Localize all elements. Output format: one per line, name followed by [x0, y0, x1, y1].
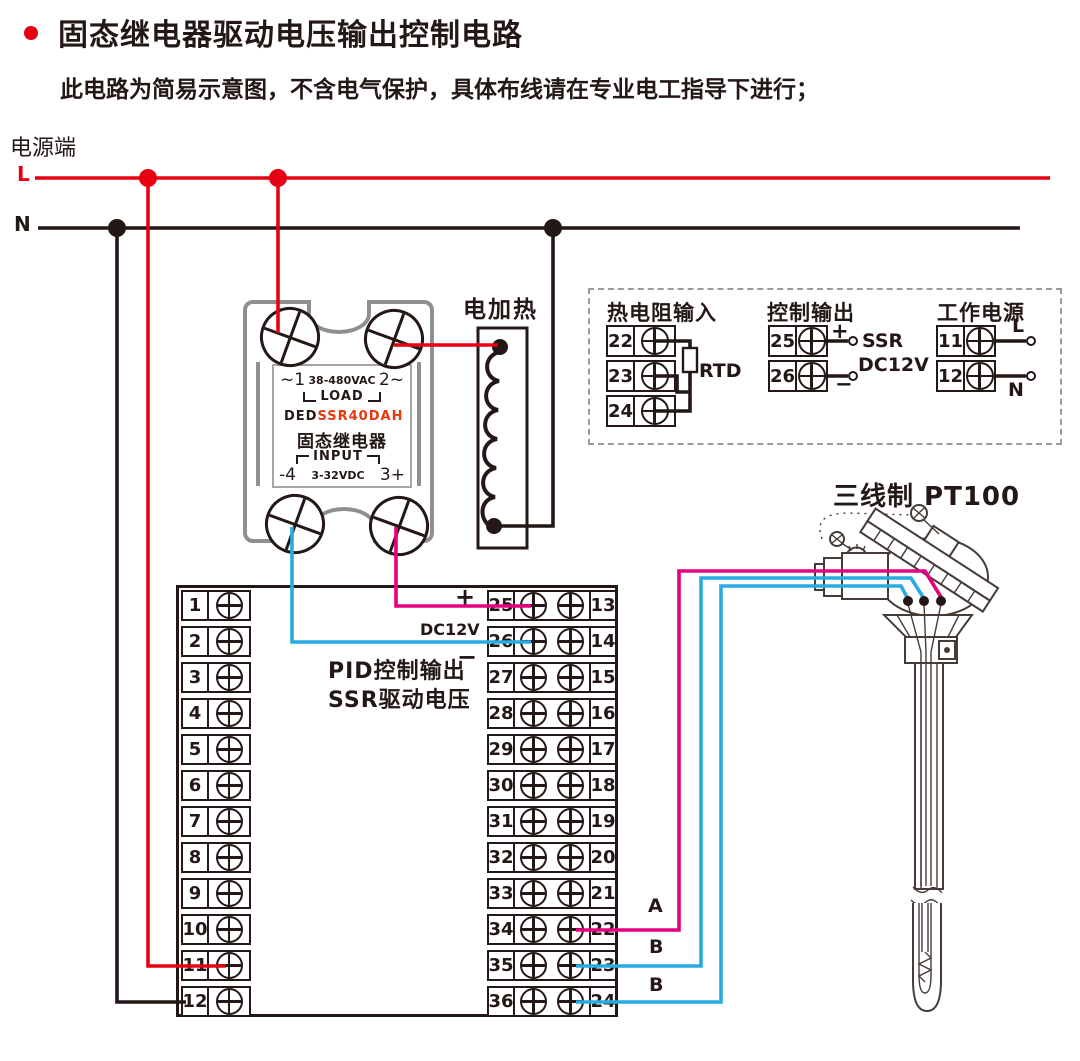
wire-label-b2: B [649, 974, 663, 996]
terminal-number: 29 [489, 736, 515, 763]
screw-icon [641, 397, 669, 425]
ssr-terminal-4: -4 [279, 465, 296, 485]
load-bracket-left [303, 392, 316, 402]
page-subtitle: 此电路为简易示意图，不含电气保护，具体布线请在专业电工指导下进行； [60, 70, 819, 104]
screw-icon [216, 664, 243, 691]
terminal-number: 33 [489, 880, 515, 907]
screw-cell [635, 327, 674, 355]
terminal-row-right: 2816 [487, 698, 617, 729]
wire-label-b1: B [649, 936, 663, 958]
screw-cell [635, 362, 674, 390]
controller-terminal-block: 1234567891011122513261427152816291730183… [176, 585, 618, 1017]
terminal-number: 21 [589, 880, 615, 907]
lid-swing-dotted-path [820, 513, 914, 539]
terminal-number: 28 [489, 700, 515, 727]
terminal-number: 12 [938, 362, 965, 390]
screw-icon [520, 628, 547, 655]
screw-cell [209, 700, 249, 727]
pt100-probe-drawing [815, 494, 1007, 1011]
terminal-row-right: 2917 [487, 734, 617, 765]
terminal-number: 36 [489, 988, 515, 1015]
ssr-load-label: LOAD [320, 389, 363, 404]
screw-icon [216, 808, 243, 835]
load-bracket-right [368, 392, 381, 402]
screw-cell [552, 808, 589, 835]
screw-icon [798, 362, 826, 390]
legend-terminal-row: 24 [606, 395, 676, 427]
screw-icon [520, 916, 547, 943]
legend-terminal-row: 25 [768, 325, 828, 357]
screw-icon [557, 880, 584, 907]
terminal-row-left: 9 [181, 878, 251, 909]
terminal-number: 20 [589, 844, 615, 871]
terminal-row-left: 5 [181, 734, 251, 765]
legend-terminal-row: 26 [768, 360, 828, 392]
rtd-label: RTD [699, 360, 742, 382]
screw-icon [520, 664, 547, 691]
pt100-wire-a [576, 571, 941, 930]
legend-terminal-row: 12 [936, 360, 996, 392]
screw-icon [520, 844, 547, 871]
screw-cell [209, 772, 249, 799]
pt100-wire-b1 [576, 578, 923, 966]
screw-icon [557, 628, 584, 655]
heater-label: 电加热 [463, 290, 538, 324]
ssr-input-voltage: 3-32VDC [311, 469, 364, 482]
ssr-input-label: INPUT [313, 449, 363, 464]
screw-icon [216, 844, 243, 871]
screw-cell [515, 772, 552, 799]
screw-icon [557, 808, 584, 835]
terminal-number: 6 [183, 772, 209, 799]
ssr-load-voltage: 38-480VAC [308, 374, 375, 387]
terminal-number: 22 [608, 327, 635, 355]
terminal-number: 24 [608, 397, 635, 425]
screw-icon [520, 592, 547, 619]
control-ssr-label: SSR [862, 330, 903, 352]
legend-terminal-row: 23 [606, 360, 676, 392]
supply-l-label: L [1012, 315, 1024, 337]
pt100-wire-b2 [576, 586, 907, 1002]
screw-cell [552, 700, 589, 727]
screw-cell [209, 628, 249, 655]
block-minus-sign: − [457, 643, 477, 671]
screw-cell [209, 592, 249, 619]
terminal-number: 23 [608, 362, 635, 390]
screw-cell [797, 362, 826, 390]
head-screw-icon [830, 532, 844, 546]
control-dc12v-label: DC12V [858, 354, 929, 376]
screw-cell [515, 736, 552, 763]
terminal-number: 19 [589, 808, 615, 835]
supply-n-ring-terminal [1026, 371, 1036, 381]
input-bracket-right [367, 455, 380, 464]
terminal-number: 32 [489, 844, 515, 871]
screw-cell [515, 664, 552, 691]
pid-output-line2: SSR驱动电压 [328, 682, 471, 714]
screw-icon [798, 327, 826, 355]
terminal-number: 4 [183, 700, 209, 727]
terminal-row-left: 4 [181, 698, 251, 729]
title-bullet-icon [24, 26, 38, 40]
terminal-number: 22 [589, 916, 615, 943]
screw-icon [216, 592, 243, 619]
ssr-left-rail [256, 362, 260, 486]
screw-icon [557, 772, 584, 799]
terminal-number: 26 [489, 628, 515, 655]
screw-cell [209, 808, 249, 835]
screw-cell [515, 988, 552, 1015]
screw-cell [552, 592, 589, 619]
supply-l-ring-terminal [1026, 336, 1036, 346]
block-plus-sign: + [455, 583, 475, 611]
screw-icon [520, 988, 547, 1015]
terminal-row-left: 1 [181, 590, 251, 621]
line-n-label: N [14, 212, 31, 236]
terminal-row-right: 2715 [487, 662, 617, 693]
terminal-row-right: 3624 [487, 986, 617, 1017]
pid-output-line1: PID控制输出 [328, 653, 466, 685]
screw-icon [216, 628, 243, 655]
screw-cell [209, 880, 249, 907]
screw-cell [552, 772, 589, 799]
terminal-row-right: 3018 [487, 770, 617, 801]
input-bracket-left [296, 455, 309, 464]
screw-icon [216, 952, 243, 979]
terminal-number: 27 [489, 664, 515, 691]
terminal-number: 31 [489, 808, 515, 835]
ssr-label-plate: ~1 38-480VAC 2~ LOAD DED SSR40DAH 固态继电器 … [272, 364, 412, 488]
screw-cell [965, 362, 994, 390]
screw-icon [216, 772, 243, 799]
terminal-row-left: 3 [181, 662, 251, 693]
screw-cell [515, 808, 552, 835]
terminal-number: 34 [489, 916, 515, 943]
terminal-number: 11 [183, 952, 209, 979]
ssr-right-rail [417, 362, 421, 486]
screw-cell [209, 952, 249, 979]
terminal-number: 30 [489, 772, 515, 799]
screw-icon [520, 736, 547, 763]
probe-sheath-lower [913, 903, 941, 1011]
probe-taper [884, 615, 972, 637]
terminal-number: 1 [183, 592, 209, 619]
head-screw-dome [846, 548, 867, 559]
terminal-row-left: 7 [181, 806, 251, 837]
heater-coil [483, 352, 501, 528]
screw-icon [557, 700, 584, 727]
terminal-number: 3 [183, 664, 209, 691]
screw-icon [216, 880, 243, 907]
line-l-label: L [17, 162, 30, 186]
terminal-number: 17 [589, 736, 615, 763]
ssr-terminal-3: 3+ [380, 465, 405, 485]
screw-icon [641, 362, 669, 390]
pt100-label: 三线制 PT100 [833, 476, 1020, 513]
legend-terminal-row: 11 [936, 325, 996, 357]
terminal-number: 5 [183, 736, 209, 763]
terminal-number: 2 [183, 628, 209, 655]
screw-icon [557, 952, 584, 979]
terminal-row-left: 11 [181, 950, 251, 981]
probe-collar [905, 637, 957, 663]
terminal-row-right: 2513 [487, 590, 617, 621]
screw-cell [209, 916, 249, 943]
heater-drawing [478, 328, 527, 548]
probe-head-body [878, 538, 988, 616]
terminal-number: 8 [183, 844, 209, 871]
terminal-number: 9 [183, 880, 209, 907]
screw-icon [557, 916, 584, 943]
screw-icon [216, 988, 243, 1015]
screw-cell [552, 952, 589, 979]
terminal-number: 13 [589, 592, 615, 619]
screw-cell [515, 628, 552, 655]
screw-icon [520, 772, 547, 799]
terminal-row-right: 3523 [487, 950, 617, 981]
terminal-number: 25 [770, 327, 797, 355]
terminal-row-left: 2 [181, 626, 251, 657]
terminal-number: 24 [589, 988, 615, 1015]
screw-cell [515, 916, 552, 943]
legend-terminal-row: 22 [606, 325, 676, 357]
control-plus-sign: + [831, 319, 849, 343]
ssr-terminal-2: 2~ [379, 370, 404, 390]
screw-icon [557, 736, 584, 763]
terminal-number: 7 [183, 808, 209, 835]
screw-icon [520, 808, 547, 835]
terminal-number: 10 [183, 916, 209, 943]
terminal-number: 26 [770, 362, 797, 390]
screw-cell [635, 397, 674, 425]
screw-icon [966, 327, 994, 355]
rtd-element-symbol [919, 952, 931, 982]
terminal-number: 14 [589, 628, 615, 655]
terminal-row-right: 3422 [487, 914, 617, 945]
screw-cell [552, 916, 589, 943]
screw-cell [209, 844, 249, 871]
n-to-heater-wire [496, 228, 553, 526]
screw-icon [557, 988, 584, 1015]
terminal-row-right: 3321 [487, 878, 617, 909]
screw-icon [557, 592, 584, 619]
ssr-model: SSR40DAH [317, 409, 403, 424]
screw-cell [552, 736, 589, 763]
screw-icon [557, 844, 584, 871]
screw-cell [515, 952, 552, 979]
screw-icon [216, 736, 243, 763]
probe-neck-box [842, 553, 888, 599]
screw-icon [520, 700, 547, 727]
wire-label-a: A [648, 895, 663, 917]
screw-icon [520, 952, 547, 979]
supply-n-label: N [1008, 379, 1024, 401]
terminal-number: 16 [589, 700, 615, 727]
terminal-number: 23 [589, 952, 615, 979]
screw-icon [216, 916, 243, 943]
screw-cell [552, 988, 589, 1015]
terminal-row-left: 6 [181, 770, 251, 801]
terminal-number: 35 [489, 952, 515, 979]
terminal-row-right: 3220 [487, 842, 617, 873]
power-source-label: 电源端 [10, 130, 76, 162]
terminal-row-right: 2614 [487, 626, 617, 657]
terminal-number: 11 [938, 327, 965, 355]
rtd-input-title: 热电阻输入 [607, 297, 717, 327]
screw-cell [552, 628, 589, 655]
ssr-brand: DED [284, 409, 317, 424]
page-title: 固态继电器驱动电压输出控制电路 [58, 10, 523, 54]
screw-cell [515, 592, 552, 619]
screw-cell [515, 844, 552, 871]
terminal-number: 25 [489, 592, 515, 619]
screw-cell [515, 700, 552, 727]
screw-icon [216, 700, 243, 727]
block-dc12v-label: DC12V [420, 620, 480, 639]
screw-cell [797, 327, 826, 355]
wiring-diagram: 固态继电器驱动电压输出控制电路 此电路为简易示意图，不含电气保护，具体布线请在专… [0, 0, 1080, 1061]
cable-gland [824, 558, 842, 596]
screw-cell [965, 327, 994, 355]
terminal-row-left: 8 [181, 842, 251, 873]
terminal-number: 18 [589, 772, 615, 799]
screw-cell [209, 664, 249, 691]
screw-cell [515, 880, 552, 907]
probe-sheath-upper [915, 663, 943, 889]
screw-icon [641, 327, 669, 355]
terminal-row-left: 10 [181, 914, 251, 945]
terminal-row-left: 12 [181, 986, 251, 1017]
ssr-plus-ring-terminal [848, 336, 858, 346]
screw-cell [209, 736, 249, 763]
screw-icon [520, 880, 547, 907]
ssr-minus-ring-terminal [848, 371, 858, 381]
screw-icon [966, 362, 994, 390]
screw-icon [557, 664, 584, 691]
ssr-terminal-1: ~1 [280, 370, 305, 390]
screw-cell [552, 664, 589, 691]
terminal-row-right: 3119 [487, 806, 617, 837]
screw-cell [209, 988, 249, 1015]
terminal-number: 12 [183, 988, 209, 1015]
screw-cell [552, 844, 589, 871]
terminal-number: 15 [589, 664, 615, 691]
screw-cell [552, 880, 589, 907]
